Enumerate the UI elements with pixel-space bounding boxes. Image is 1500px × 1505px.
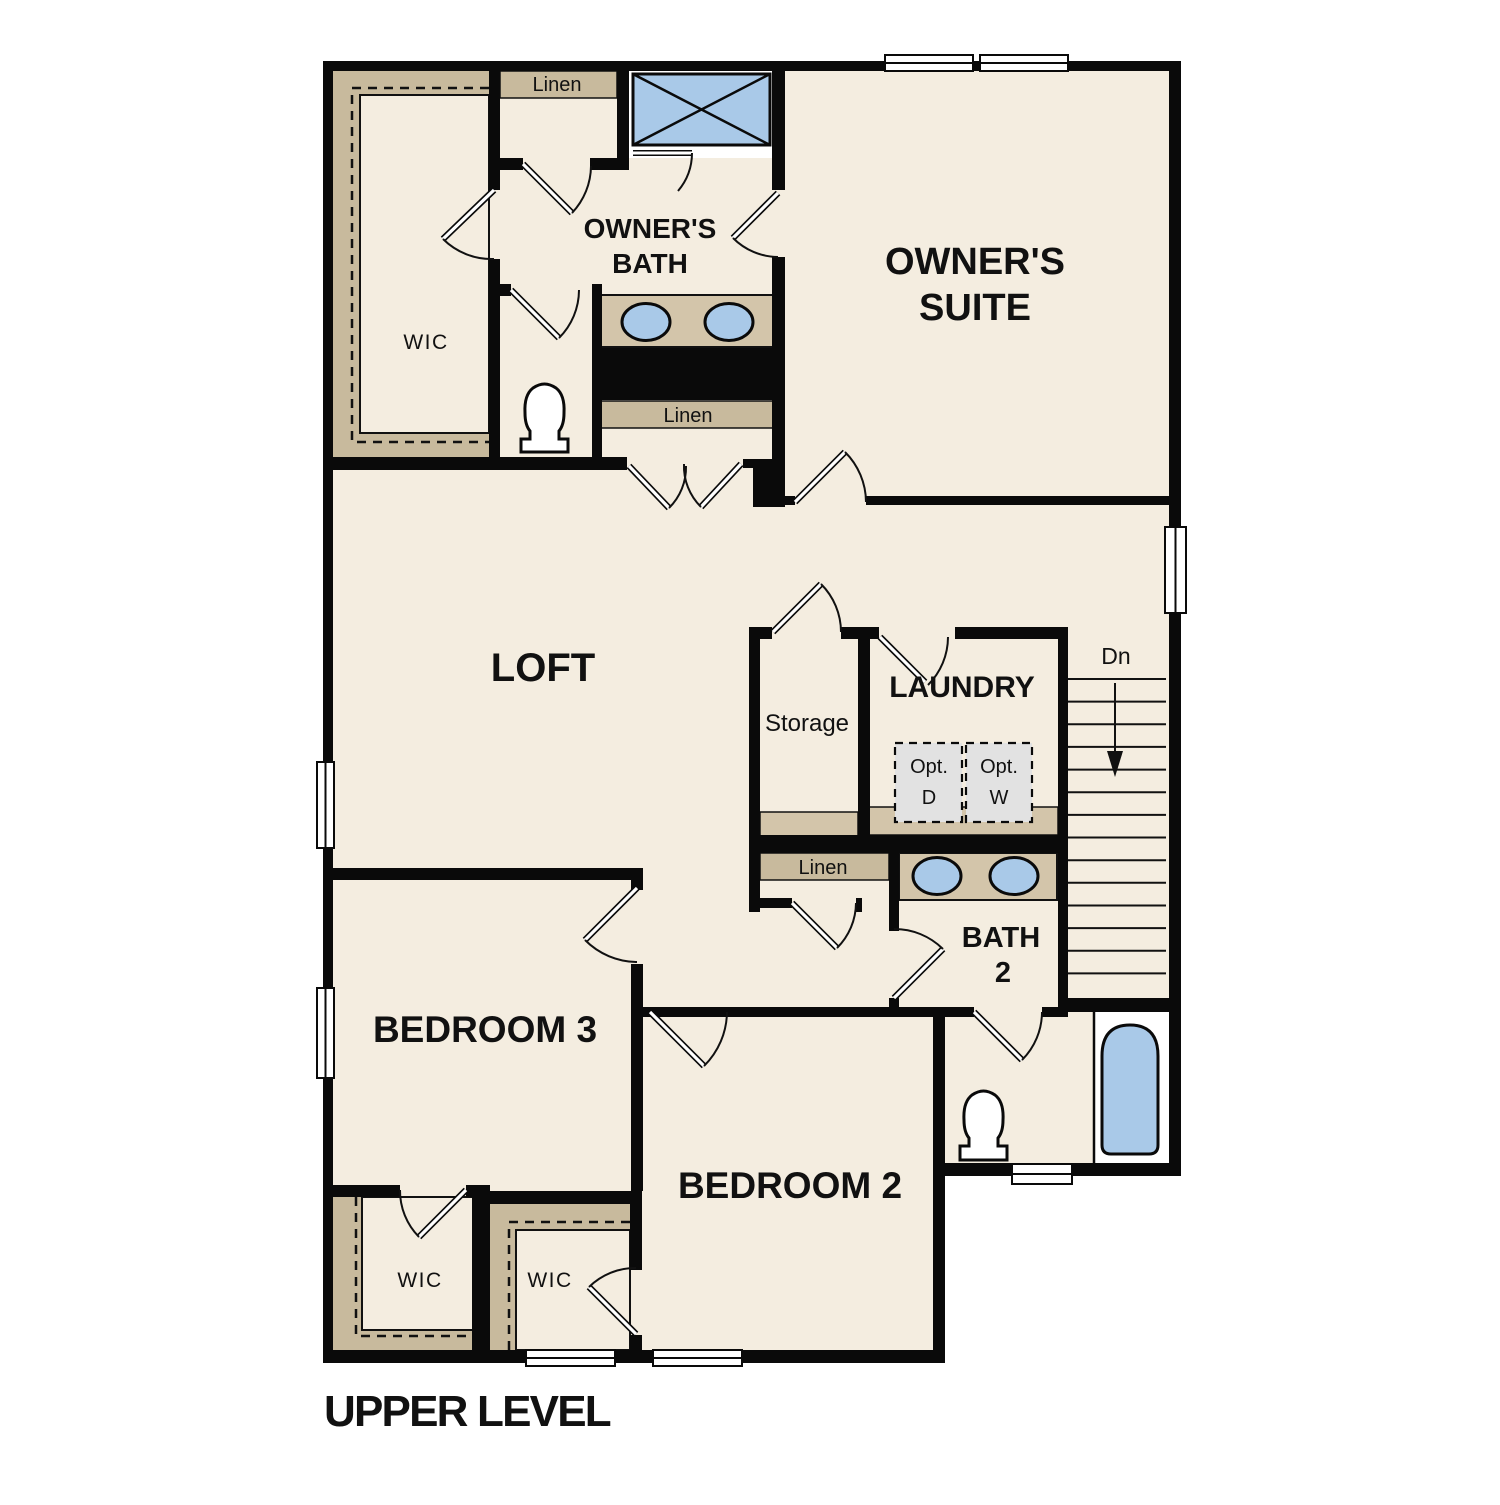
svg-text:Linen: Linen [664,405,713,427]
svg-text:Linen: Linen [799,857,848,879]
svg-text:BEDROOM 3: BEDROOM 3 [373,1009,597,1050]
svg-text:WIC: WIC [397,1269,442,1292]
svg-text:Dn: Dn [1101,643,1130,669]
svg-text:UPPER LEVEL: UPPER LEVEL [324,1387,611,1436]
svg-text:OWNER'S: OWNER'S [885,241,1065,283]
svg-text:D: D [922,787,936,809]
svg-text:LAUNDRY: LAUNDRY [889,671,1035,704]
svg-text:SUITE: SUITE [919,287,1031,329]
svg-text:WIC: WIC [527,1269,572,1292]
svg-text:2: 2 [995,957,1011,989]
svg-text:Linen: Linen [533,74,582,96]
svg-text:BEDROOM 2: BEDROOM 2 [678,1165,902,1206]
svg-text:Opt.: Opt. [980,756,1018,778]
svg-text:Opt.: Opt. [910,756,948,778]
svg-text:LOFT: LOFT [491,646,595,690]
svg-text:OWNER'S: OWNER'S [584,213,717,244]
svg-text:BATH: BATH [612,248,688,279]
svg-text:WIC: WIC [403,331,448,354]
svg-text:BATH: BATH [962,922,1040,954]
svg-text:Storage: Storage [765,710,849,737]
svg-text:W: W [990,787,1009,809]
